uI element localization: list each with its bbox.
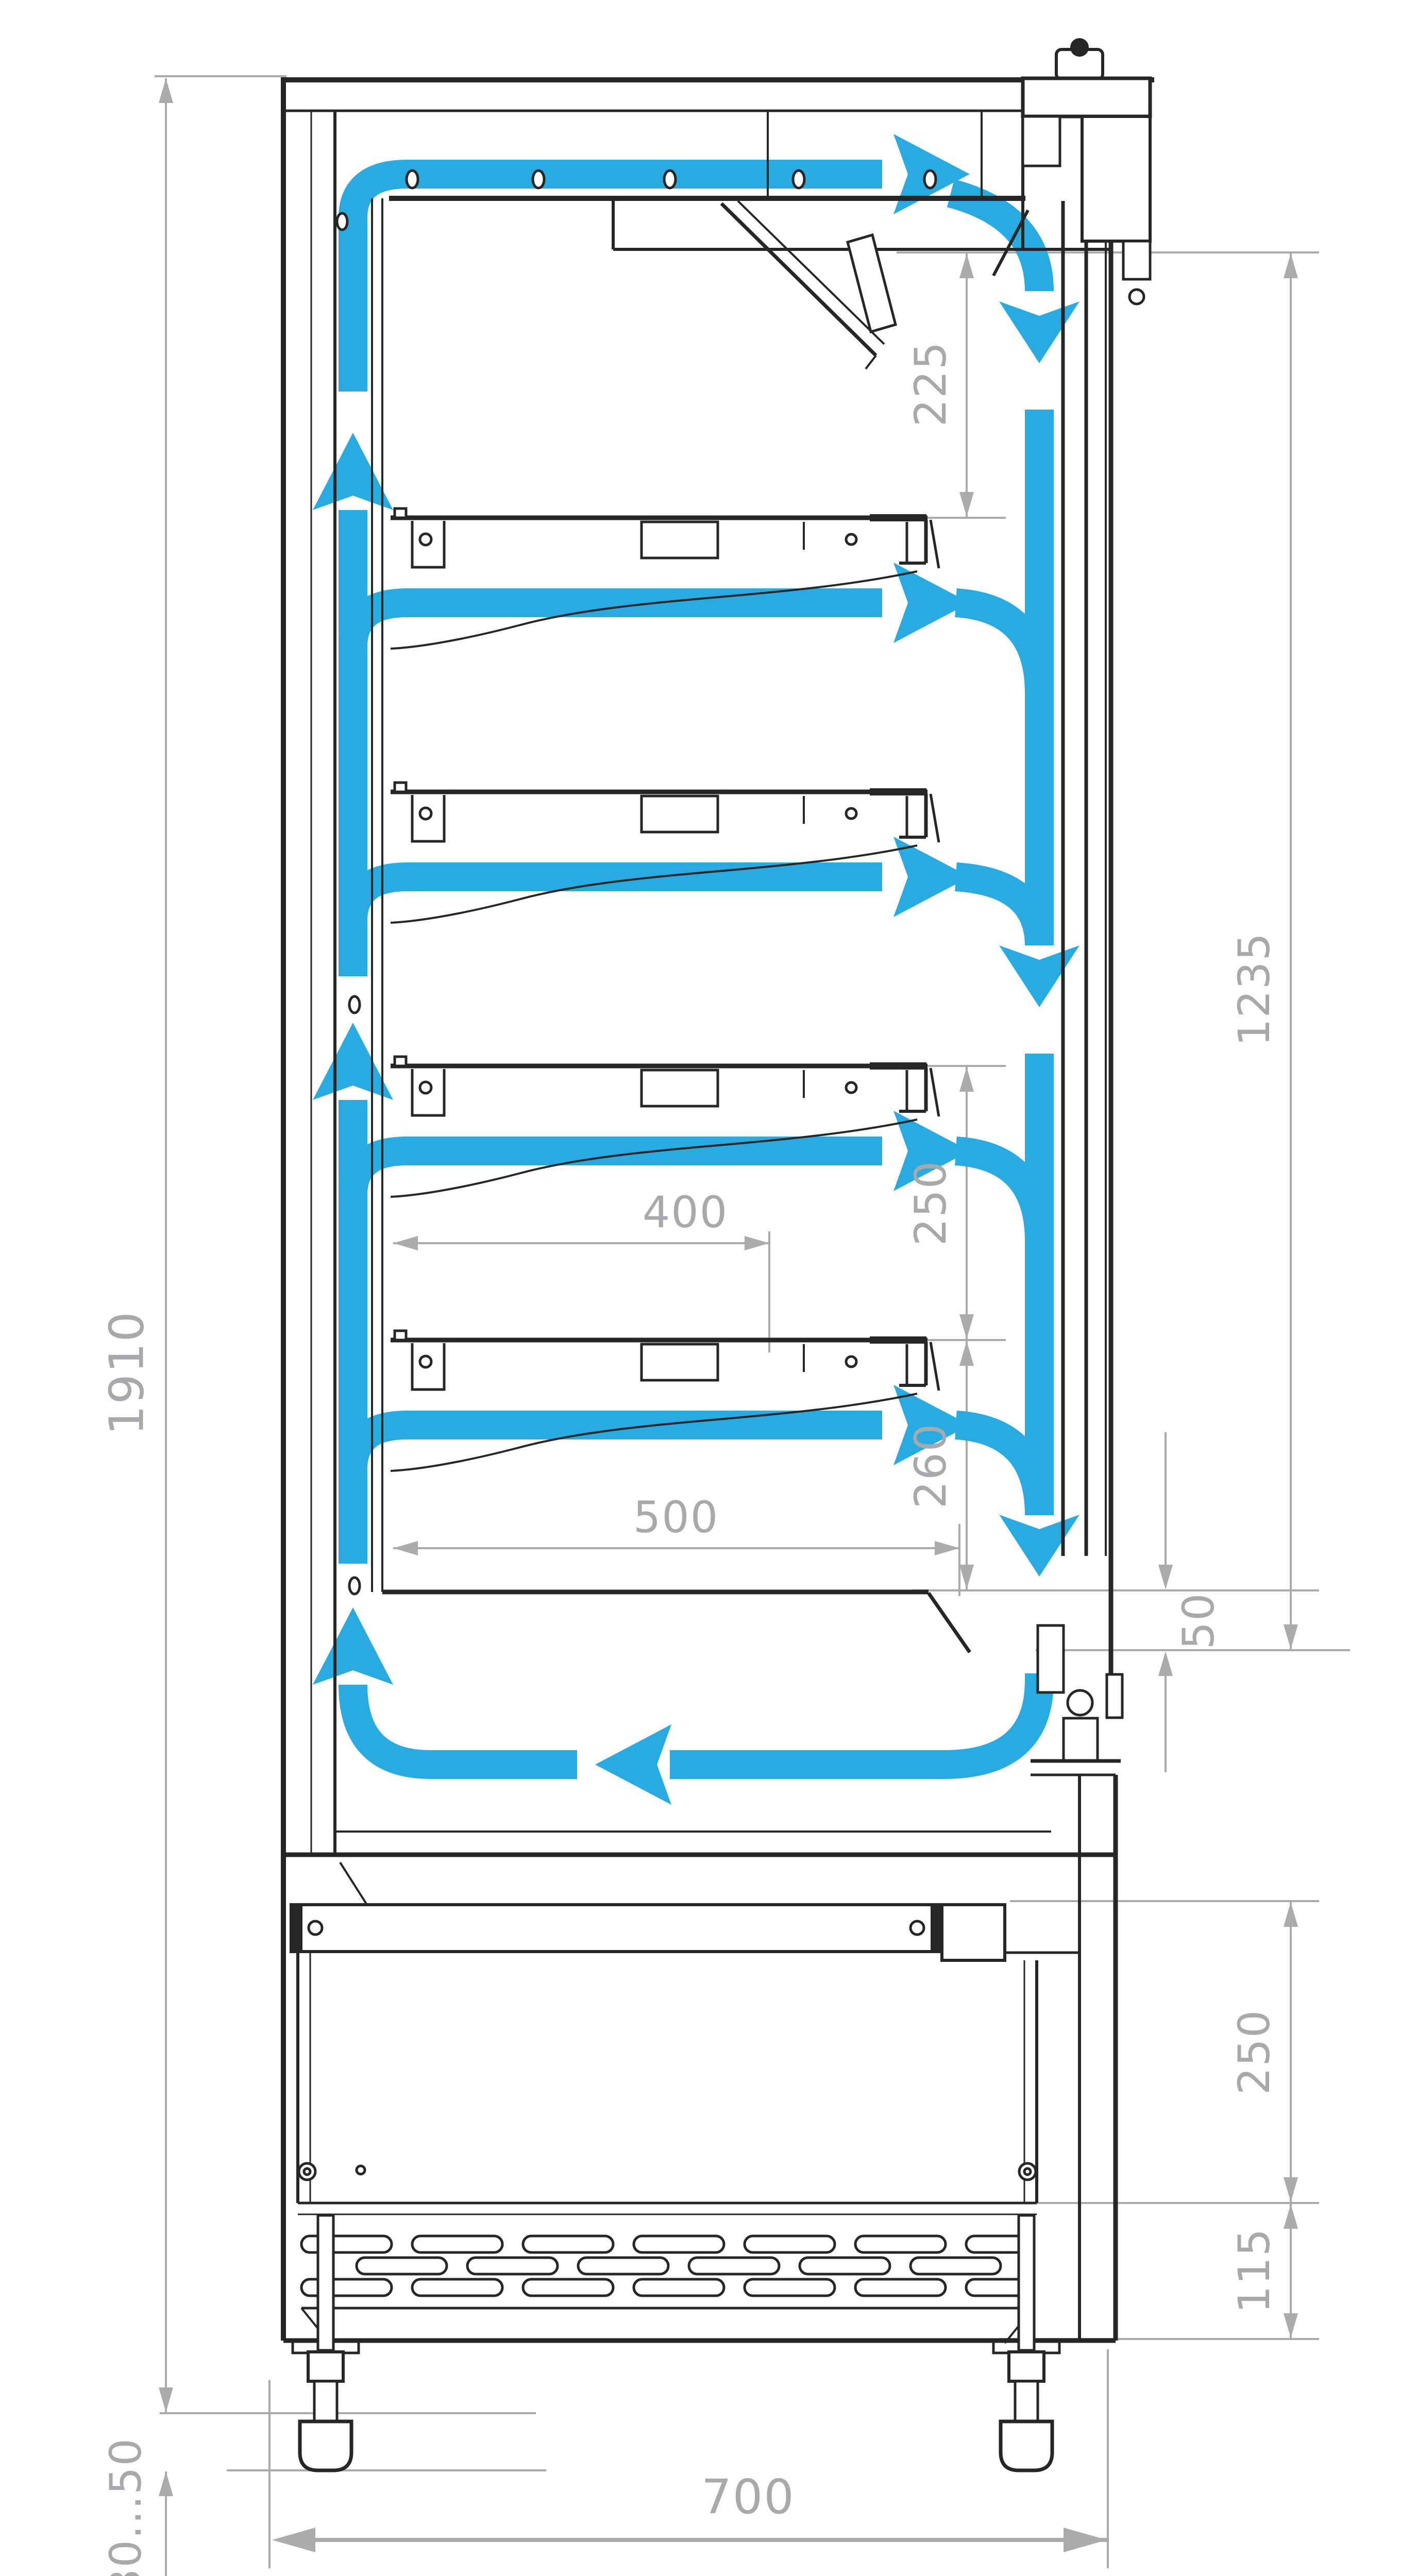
deck-front-lip [929, 1593, 970, 1652]
foot-neck [314, 2381, 337, 2421]
ticket-clip [931, 520, 939, 568]
label-shelf-spacing: 250 [905, 1160, 956, 1246]
label-shelf-depth: 400 [643, 1187, 728, 1238]
shelf-2 [391, 783, 939, 923]
bracket-hole [420, 1082, 431, 1093]
corner-screw-center [304, 2168, 310, 2175]
label-deck-depth: 500 [633, 1492, 719, 1543]
door-bottom-bracket [1038, 1625, 1064, 1692]
dim-arrow-icon [959, 1067, 974, 1092]
dim-arrow-icon [272, 2528, 315, 2552]
dim-arrow-icon [159, 2471, 173, 2496]
grille-slat [855, 2279, 946, 2296]
duct-hole [407, 171, 418, 188]
grille-slat [523, 2236, 613, 2252]
foot-stem [318, 2215, 333, 2350]
ticket-clip [931, 794, 939, 842]
label-front-interior-height: 1235 [1229, 932, 1279, 1046]
hinge-block [1082, 116, 1150, 241]
shelf-hole [846, 534, 856, 545]
dim-arrow-icon [935, 1541, 959, 1555]
shelf-hole [846, 808, 856, 819]
shelf-1 [391, 509, 939, 649]
hinge-pin [1129, 290, 1144, 304]
airflow-return-bend [353, 1685, 577, 1765]
airflow-arrow-up-icon [313, 1607, 393, 1685]
diagram-page: 1910 225 1235 250 400 260 500 50 250 115… [0, 0, 1417, 2576]
deflector-tip [866, 355, 876, 369]
grille-slat [523, 2279, 613, 2296]
dim-arrow-icon [1284, 2313, 1298, 2338]
shelf-lamp-box [642, 1070, 718, 1106]
dim-arrow-icon [1158, 1565, 1173, 1589]
foot-pad [300, 2421, 351, 2470]
shelf-lamp-box [642, 796, 718, 832]
price-rail [870, 788, 926, 795]
dim-arrow-icon [393, 1541, 418, 1555]
pivot-knob [1070, 38, 1089, 57]
dim-arrow-icon [159, 78, 173, 103]
grille-slat [800, 2258, 890, 2274]
hinge-tab [1123, 241, 1150, 279]
duct-hole [924, 171, 936, 188]
label-grille-height: 115 [1229, 2228, 1279, 2313]
grille-slat [357, 2258, 447, 2274]
airflow-arrow-down-icon [999, 945, 1079, 1007]
hinge-bracket [1023, 116, 1060, 166]
foot-nut [308, 2352, 343, 2381]
grille-slat [634, 2236, 724, 2252]
grille-slat [412, 2279, 502, 2296]
cabinet-structure [281, 38, 1154, 2470]
machine-compartment [291, 1905, 1079, 2203]
dim-arrow-icon [159, 2387, 173, 2412]
rail-screw [910, 1921, 924, 1935]
grille-slat [634, 2279, 724, 2296]
grille-slat [910, 2258, 1001, 2274]
grille-slat [689, 2258, 779, 2274]
grille-slat [745, 2236, 835, 2252]
shelf-back-hook [395, 1331, 406, 1340]
price-rail [870, 514, 926, 521]
airflow-arrow-up-icon [313, 1023, 393, 1100]
shelf-lamp-box [642, 522, 718, 558]
label-overall-height: 1910 [99, 1311, 154, 1435]
airflow-arrow-left-icon [595, 1724, 671, 1805]
ticket-clip [931, 1342, 939, 1391]
door-top-rail [1023, 78, 1150, 116]
label-overall-depth: 700 [701, 2469, 795, 2524]
ventilation-grille [298, 2203, 1037, 2343]
door-bottom-roller [1068, 1690, 1092, 1715]
dim-arrow-icon [1284, 1624, 1298, 1649]
door-bottom-pin [1107, 1674, 1122, 1718]
airflow-junction-curve [956, 1151, 1039, 1241]
bracket-hole [420, 534, 431, 545]
panel-hole [349, 996, 360, 1013]
airflow-circulation [313, 134, 1079, 1805]
dim-arrow-icon [959, 1314, 974, 1339]
airflow-junction-curve [956, 1425, 1039, 1515]
grille-slat [412, 2236, 502, 2252]
label-feet-range: 30...50 [100, 2437, 151, 2576]
grille-slat [855, 2236, 946, 2252]
airflow-arrow-down-icon [999, 1515, 1079, 1577]
rail-end-cap [291, 1905, 302, 1952]
airflow-return-run [670, 1673, 1039, 1765]
price-rail [870, 1062, 926, 1070]
duct-hole [664, 171, 676, 188]
ticket-clip [931, 1068, 939, 1116]
dim-arrow-icon [1284, 253, 1298, 278]
dim-arrow-icon [959, 1341, 974, 1366]
shelf-hole [846, 1357, 856, 1367]
airflow-arrow-up-icon [313, 433, 393, 510]
label-return-air-gap: 50 [1173, 1592, 1224, 1650]
bracket-hole [420, 1356, 431, 1367]
rail-bracket [942, 1905, 1005, 1960]
machine-top-rail [291, 1905, 942, 1952]
duct-hole [533, 171, 544, 188]
door-bottom-block [1064, 1718, 1098, 1760]
foot-stem [1019, 2215, 1034, 2350]
rail-end-cap [931, 1905, 942, 1952]
cabinet-section-diagram: 1910 225 1235 250 400 260 500 50 250 115… [0, 0, 1417, 2576]
dim-arrow-icon [1064, 2528, 1107, 2552]
label-canopy-to-top-shelf: 225 [905, 341, 956, 427]
price-rail [870, 1336, 926, 1344]
grille-slat [301, 2236, 392, 2252]
foot-neck [1015, 2381, 1038, 2421]
dim-arrow-icon [1284, 2204, 1298, 2229]
dim-arrow-icon [1284, 2177, 1298, 2202]
dim-arrow-icon [1284, 1902, 1298, 1927]
grille-slat [467, 2258, 558, 2274]
grille-slat [745, 2279, 835, 2296]
airflow-arrow-down-icon [999, 301, 1079, 363]
shelf-hole [846, 1082, 856, 1093]
shelf-3 [391, 1057, 939, 1197]
dim-arrow-icon [959, 492, 974, 517]
shelf-lamp-box [642, 1344, 718, 1380]
shelf-back-hook [395, 783, 406, 792]
grille-slat [301, 2279, 392, 2296]
dim-arrow-icon [1158, 1651, 1173, 1676]
corner-screw-center [1024, 2168, 1031, 2175]
shelf-4 [391, 1331, 939, 1471]
airflow-junction-curve [956, 877, 1039, 945]
panel-hole [337, 213, 347, 230]
air-deflector [721, 204, 876, 355]
dim-arrow-icon [393, 1236, 418, 1250]
grille-slat [578, 2258, 668, 2274]
foot-nut [1009, 2352, 1044, 2381]
duct-hole [793, 171, 804, 188]
foot-pad [1001, 2421, 1052, 2470]
label-machine-compartment-height: 250 [1229, 2009, 1279, 2095]
dim-arrow-icon [959, 1565, 974, 1589]
panel-screw [357, 2166, 365, 2174]
label-bottom-shelf-to-deck: 260 [905, 1423, 956, 1509]
rail-screw [309, 1921, 322, 1935]
bracket-hole [420, 808, 431, 819]
dim-arrow-icon [745, 1236, 769, 1250]
panel-hole [349, 1578, 360, 1594]
shelf-back-hook [395, 1057, 406, 1066]
shelf-back-hook [395, 509, 406, 518]
canopy [389, 111, 1111, 369]
dim-arrow-icon [959, 253, 974, 278]
airflow-junction-curve [956, 603, 1039, 693]
